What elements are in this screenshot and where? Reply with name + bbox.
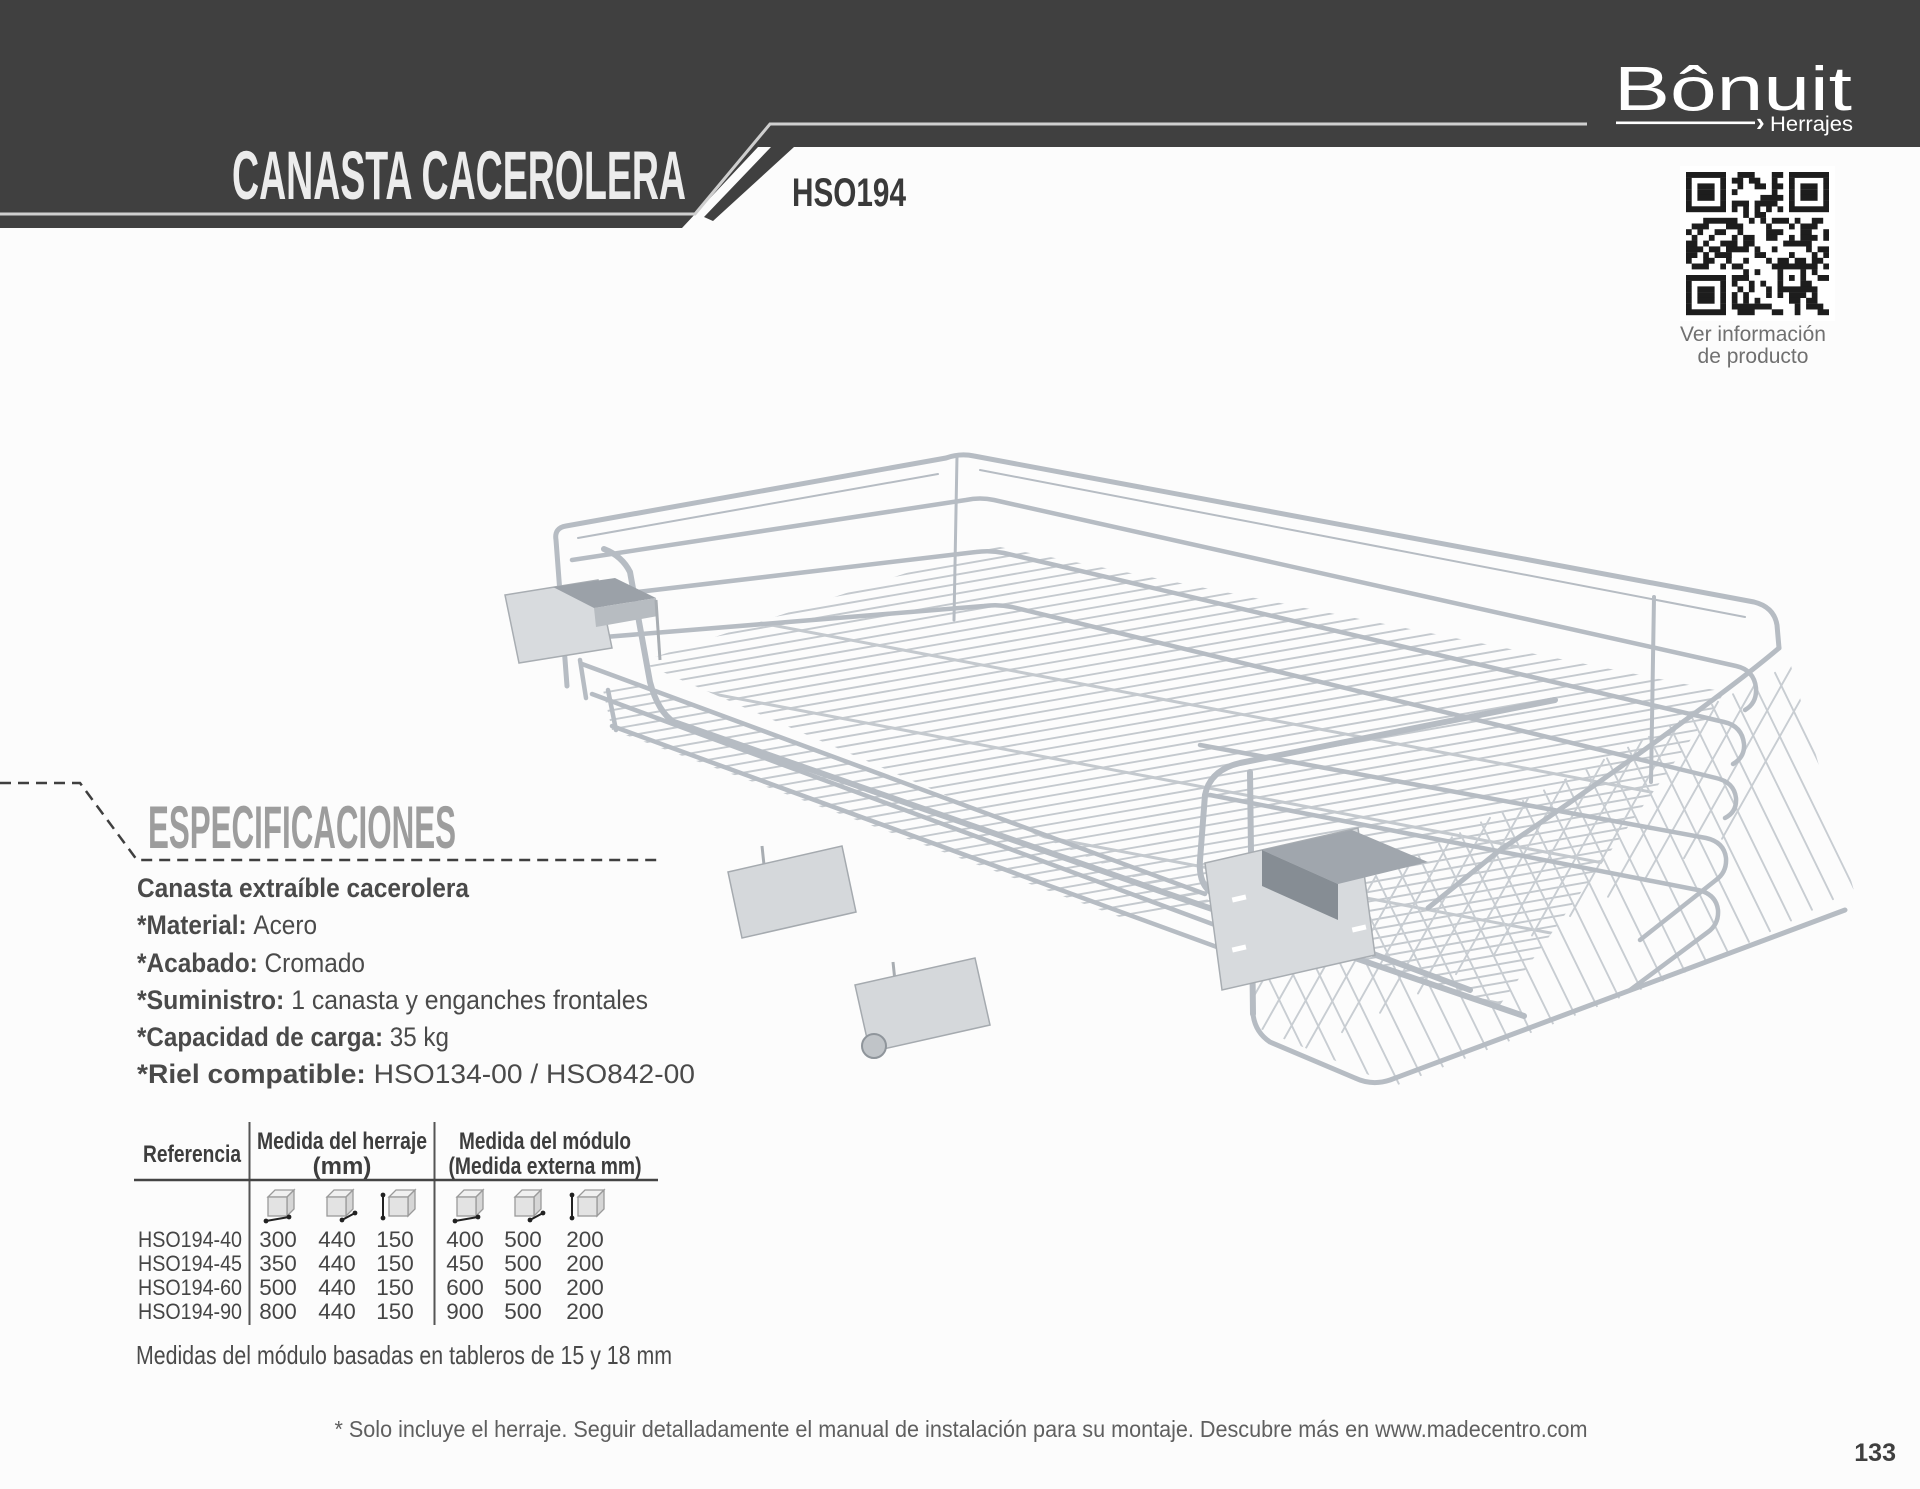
svg-text:* Solo incluye el herraje. Seg: * Solo incluye el herraje. Seguir detall… — [335, 1416, 1588, 1442]
svg-text:440: 440 — [318, 1299, 356, 1324]
svg-text:500: 500 — [504, 1227, 542, 1252]
svg-text:de producto: de producto — [1698, 345, 1809, 368]
svg-text:CANASTA CACEROLERA: CANASTA CACEROLERA — [232, 137, 686, 214]
svg-text:(Medida externa mm): (Medida externa mm) — [449, 1153, 642, 1180]
svg-text:*Acabado: Cromado: *Acabado: Cromado — [137, 948, 365, 978]
svg-text:HSO194-40: HSO194-40 — [138, 1227, 242, 1252]
svg-text:Canasta extraíble cacerolera: Canasta extraíble cacerolera — [137, 873, 470, 903]
svg-text:440: 440 — [318, 1227, 356, 1252]
svg-text:*Capacidad de carga: 35 kg: *Capacidad de carga: 35 kg — [137, 1022, 449, 1052]
svg-text:200: 200 — [566, 1275, 604, 1300]
svg-text:(mm): (mm) — [313, 1153, 372, 1180]
svg-text:500: 500 — [504, 1275, 542, 1300]
svg-text:HSO194-90: HSO194-90 — [138, 1299, 242, 1324]
svg-text:133: 133 — [1854, 1439, 1896, 1467]
svg-text:150: 150 — [376, 1251, 414, 1276]
svg-text:*Material: Acero: *Material: Acero — [137, 910, 317, 940]
svg-text:150: 150 — [376, 1275, 414, 1300]
svg-text:HSO194-45: HSO194-45 — [138, 1251, 242, 1276]
svg-text:*Suministro: 1 canasta y engan: *Suministro: 1 canasta y enganches front… — [137, 985, 648, 1015]
svg-text:450: 450 — [446, 1251, 484, 1276]
svg-text:400: 400 — [446, 1227, 484, 1252]
svg-text:Medidas del módulo basadas en: Medidas del módulo basadas en tableros d… — [136, 1340, 672, 1370]
svg-text:Herrajes: Herrajes — [1770, 113, 1853, 136]
svg-text:500: 500 — [259, 1275, 297, 1300]
svg-text:*Riel compatible: HSO134-00 /: *Riel compatible: HSO134-00 / HSO842-00 — [137, 1059, 695, 1089]
svg-text:440: 440 — [318, 1251, 356, 1276]
svg-text:200: 200 — [566, 1251, 604, 1276]
svg-text:440: 440 — [318, 1275, 356, 1300]
svg-text:Medida del herraje: Medida del herraje — [257, 1128, 427, 1155]
svg-text:›: › — [1756, 107, 1765, 137]
svg-text:ESPECIFICACIONES: ESPECIFICACIONES — [148, 794, 456, 861]
svg-text:500: 500 — [504, 1299, 542, 1324]
svg-text:500: 500 — [504, 1251, 542, 1276]
svg-text:600: 600 — [446, 1275, 484, 1300]
svg-text:Referencia: Referencia — [143, 1141, 242, 1168]
svg-text:HSO194: HSO194 — [792, 171, 907, 215]
svg-text:800: 800 — [259, 1299, 297, 1324]
svg-text:300: 300 — [259, 1227, 297, 1252]
svg-text:350: 350 — [259, 1251, 297, 1276]
svg-text:HSO194-60: HSO194-60 — [138, 1275, 242, 1300]
svg-text:150: 150 — [376, 1227, 414, 1252]
svg-text:900: 900 — [446, 1299, 484, 1324]
svg-text:200: 200 — [566, 1227, 604, 1252]
svg-text:Medida del módulo: Medida del módulo — [459, 1128, 631, 1155]
svg-text:150: 150 — [376, 1299, 414, 1324]
svg-text:200: 200 — [566, 1299, 604, 1324]
svg-text:Ver información: Ver información — [1680, 323, 1826, 346]
